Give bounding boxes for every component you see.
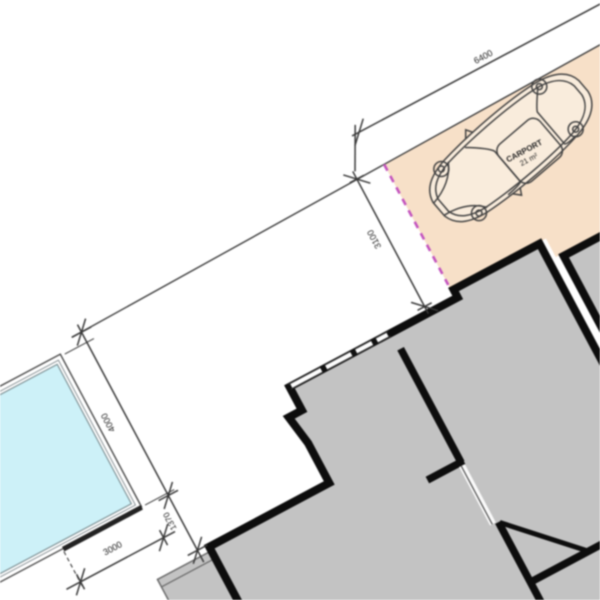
svg-text:3000: 3000: [101, 539, 123, 557]
svg-text:1370: 1370: [161, 510, 179, 532]
svg-text:3100: 3100: [365, 228, 383, 250]
svg-text:6400: 6400: [472, 48, 494, 66]
